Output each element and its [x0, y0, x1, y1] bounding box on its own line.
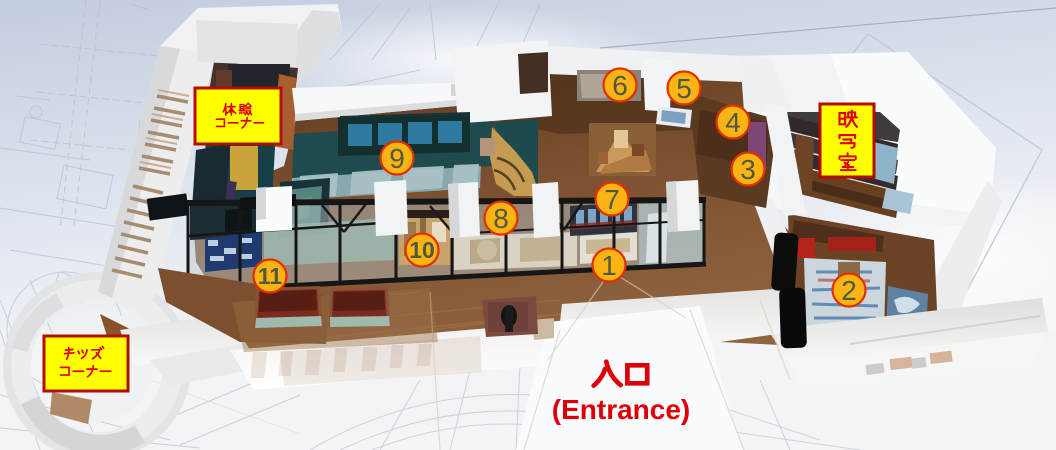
svg-text:5: 5: [676, 73, 692, 104]
svg-text:7: 7: [604, 184, 620, 215]
svg-text:10: 10: [409, 237, 435, 263]
svg-text:11: 11: [258, 263, 283, 289]
svg-text:8: 8: [493, 203, 509, 234]
svg-text:3: 3: [740, 154, 756, 185]
svg-text:(Entrance): (Entrance): [552, 394, 690, 425]
svg-text:6: 6: [612, 70, 628, 101]
svg-text:2: 2: [841, 275, 857, 306]
svg-text:9: 9: [389, 143, 405, 174]
svg-text:4: 4: [725, 107, 741, 138]
svg-text:1: 1: [601, 250, 617, 281]
